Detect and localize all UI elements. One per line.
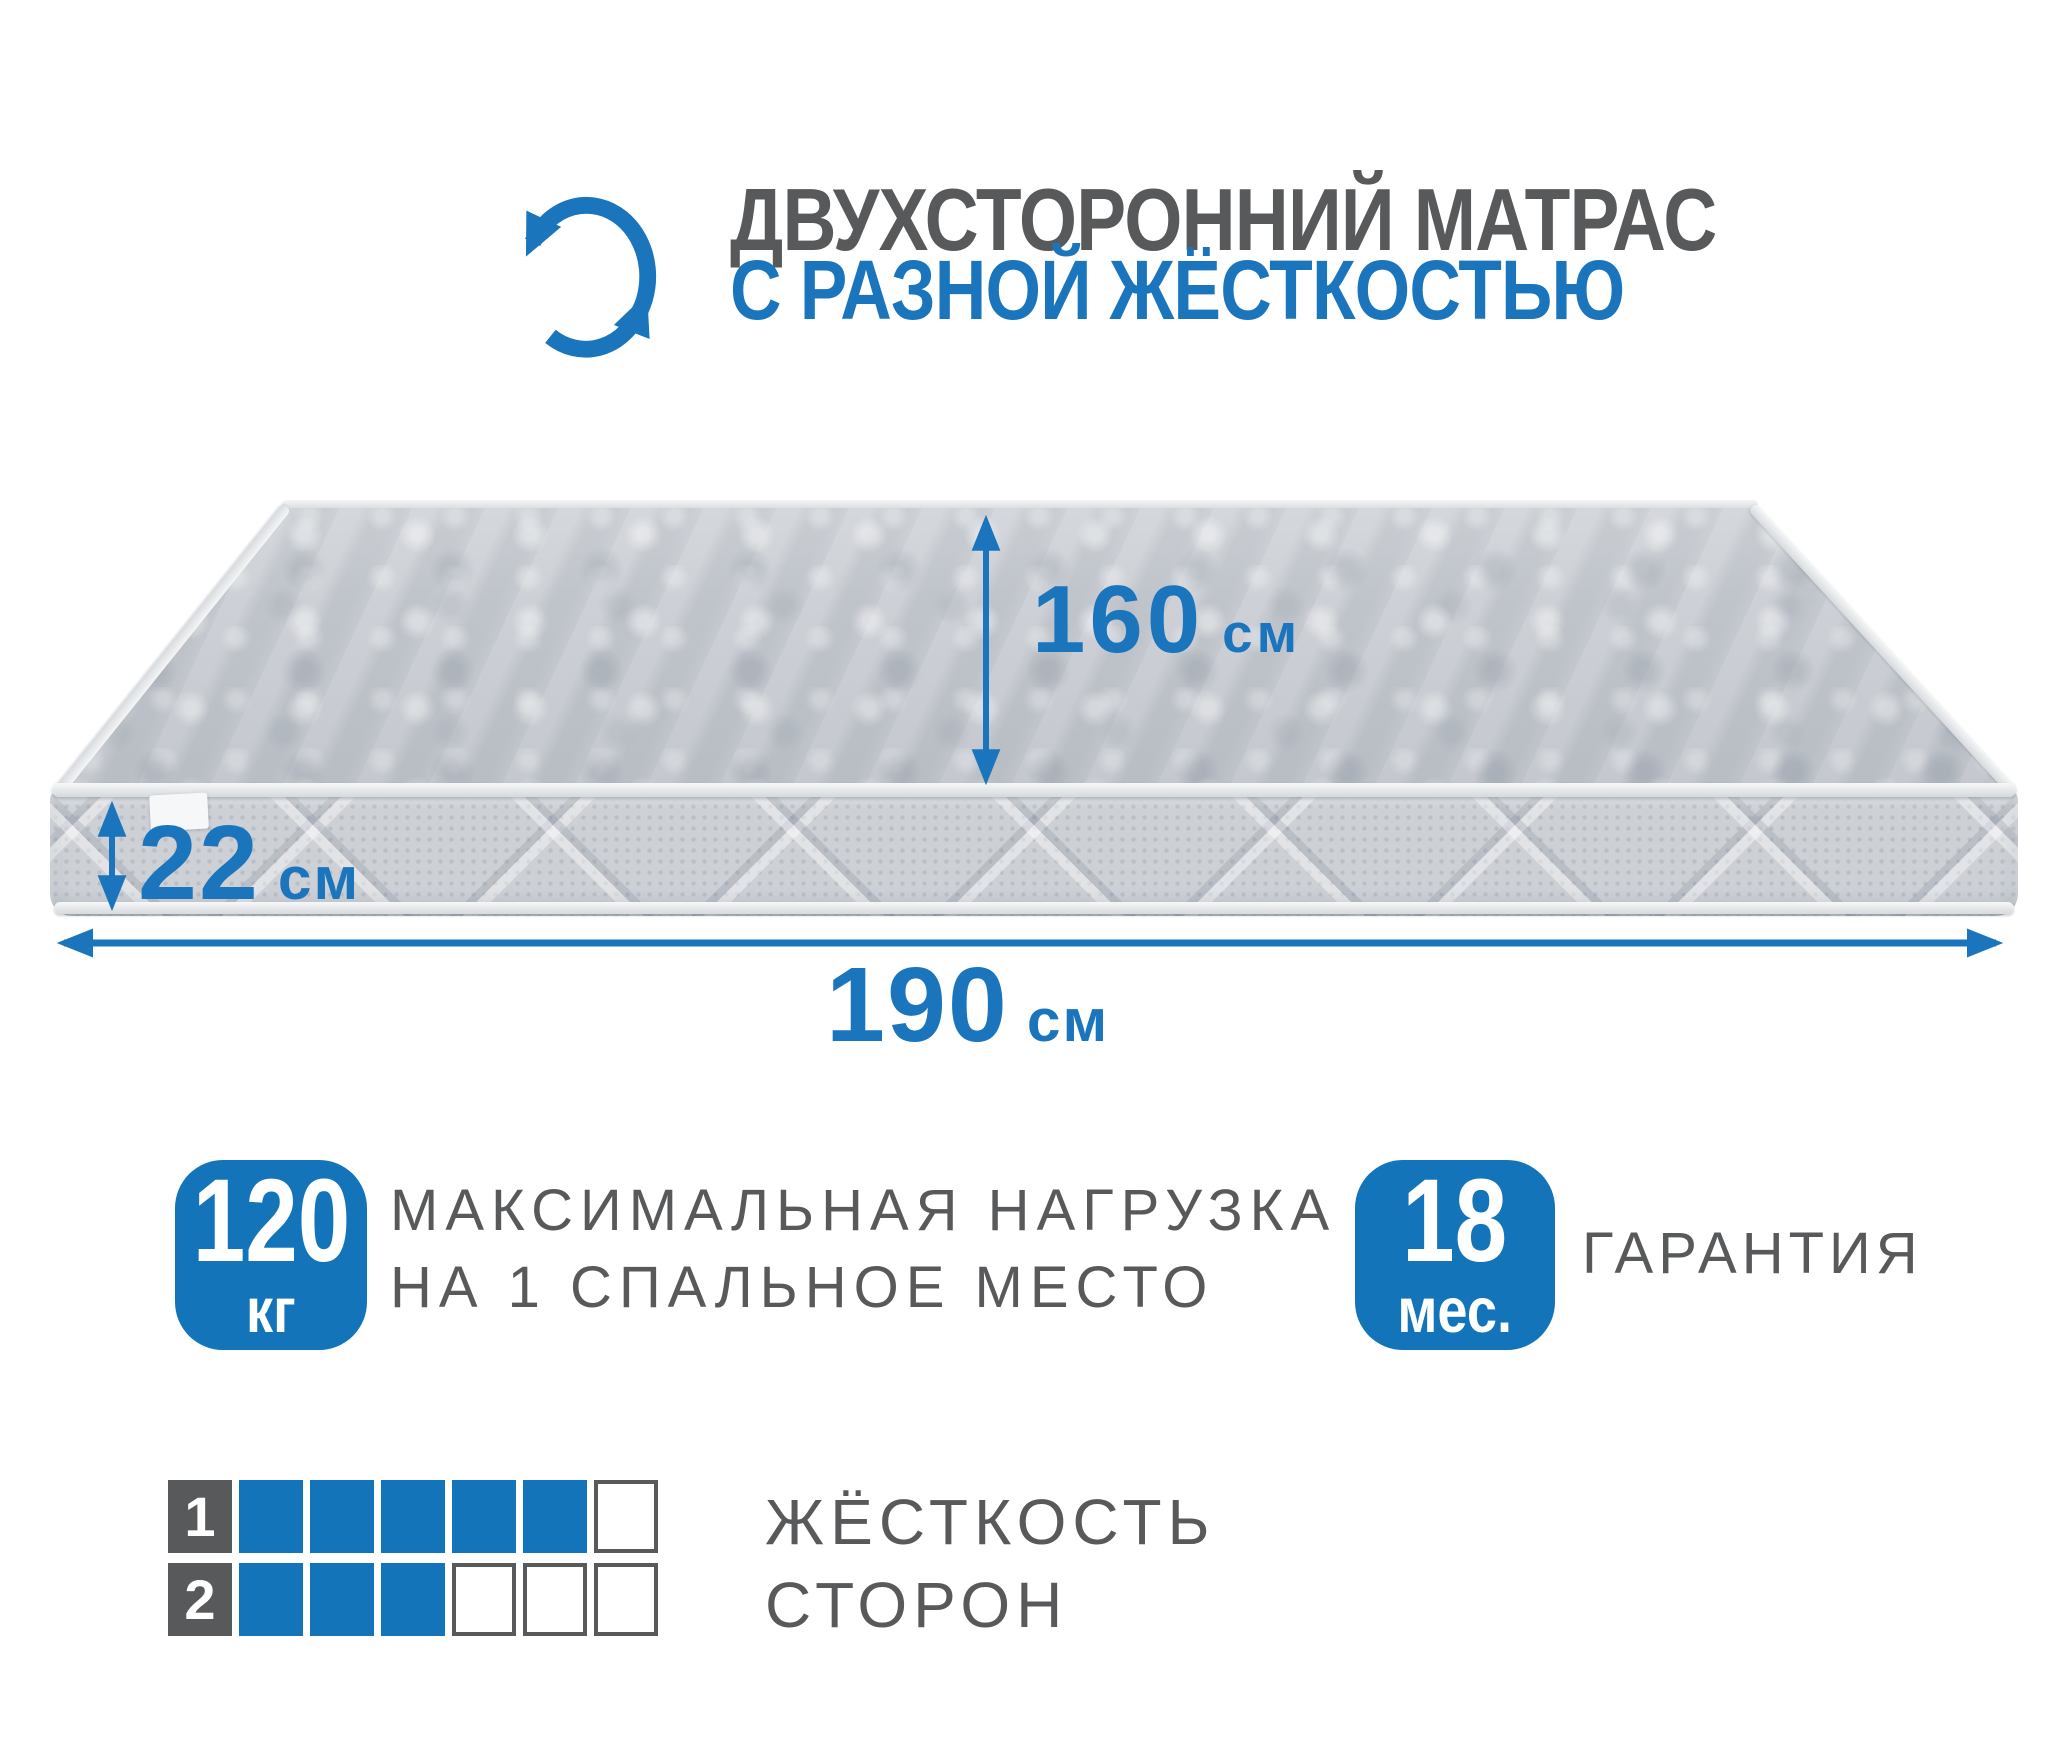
hardness-cell-filled — [381, 1480, 445, 1553]
hardness-cell-filled — [452, 1480, 516, 1553]
warranty-unit: мес. — [1398, 1280, 1513, 1343]
height-value: 22 — [138, 804, 260, 922]
warranty-label: ГАРАНТИЯ — [1582, 1225, 1923, 1283]
hardness-cell-empty — [452, 1563, 516, 1636]
length-unit: см — [1027, 986, 1109, 1054]
mattress-back-edge-piping — [282, 500, 1758, 508]
mattress-infographic: ДВУХСТОРОННИЙ МАТРАС С РАЗНОЙ ЖЁСТКОСТЬЮ — [0, 0, 2048, 1757]
height-dimension-arrow — [86, 794, 138, 918]
max-load-unit: кг — [246, 1280, 296, 1343]
rotate-arrows-icon — [502, 176, 670, 380]
max-load-badge: 120 кг — [175, 1160, 367, 1350]
length-value: 190 — [826, 946, 1009, 1064]
hardness-row: 2 — [168, 1563, 658, 1636]
hardness-cell-filled — [523, 1480, 587, 1553]
hardness-cell-empty — [594, 1563, 658, 1636]
hardness-cell-filled — [239, 1480, 303, 1553]
hardness-cell-empty — [523, 1563, 587, 1636]
length-dimension-label: 190см — [826, 952, 1109, 1058]
page-subtitle: С РАЗНОЙ ЖЁСТКОСТЬЮ — [730, 248, 1624, 332]
max-load-description: МАКСИМАЛЬНАЯ НАГРУЗКА НА 1 СПАЛЬНОЕ МЕСТ… — [390, 1173, 1336, 1326]
hardness-side-number: 1 — [168, 1480, 232, 1553]
width-dimension-arrow — [960, 506, 1012, 794]
height-unit: см — [278, 844, 360, 912]
hardness-side-number: 2 — [168, 1563, 232, 1636]
height-dimension-label: 22см — [138, 810, 360, 916]
warranty-badge: 18 мес. — [1355, 1160, 1555, 1350]
hardness-label-line2: СТОРОН — [765, 1573, 1068, 1637]
hardness-row: 1 — [168, 1480, 658, 1553]
hardness-cell-empty — [594, 1480, 658, 1553]
max-load-line2: НА 1 СПАЛЬНОЕ МЕСТО — [390, 1250, 1336, 1327]
max-load-value: 120 — [192, 1167, 350, 1276]
width-dimension-label: 160см — [1032, 572, 1301, 668]
hardness-cell-filled — [239, 1563, 303, 1636]
hardness-cell-filled — [381, 1563, 445, 1636]
warranty-value: 18 — [1402, 1167, 1507, 1276]
hardness-grid: 12 — [168, 1480, 658, 1646]
width-value: 160 — [1032, 566, 1204, 673]
hardness-cell-filled — [310, 1480, 374, 1553]
width-unit: см — [1222, 602, 1301, 664]
hardness-cell-filled — [310, 1563, 374, 1636]
hardness-label-line1: ЖЁСТКОСТЬ — [765, 1490, 1216, 1554]
max-load-line1: МАКСИМАЛЬНАЯ НАГРУЗКА — [390, 1173, 1336, 1250]
mattress-front-piping-top — [52, 783, 2016, 797]
